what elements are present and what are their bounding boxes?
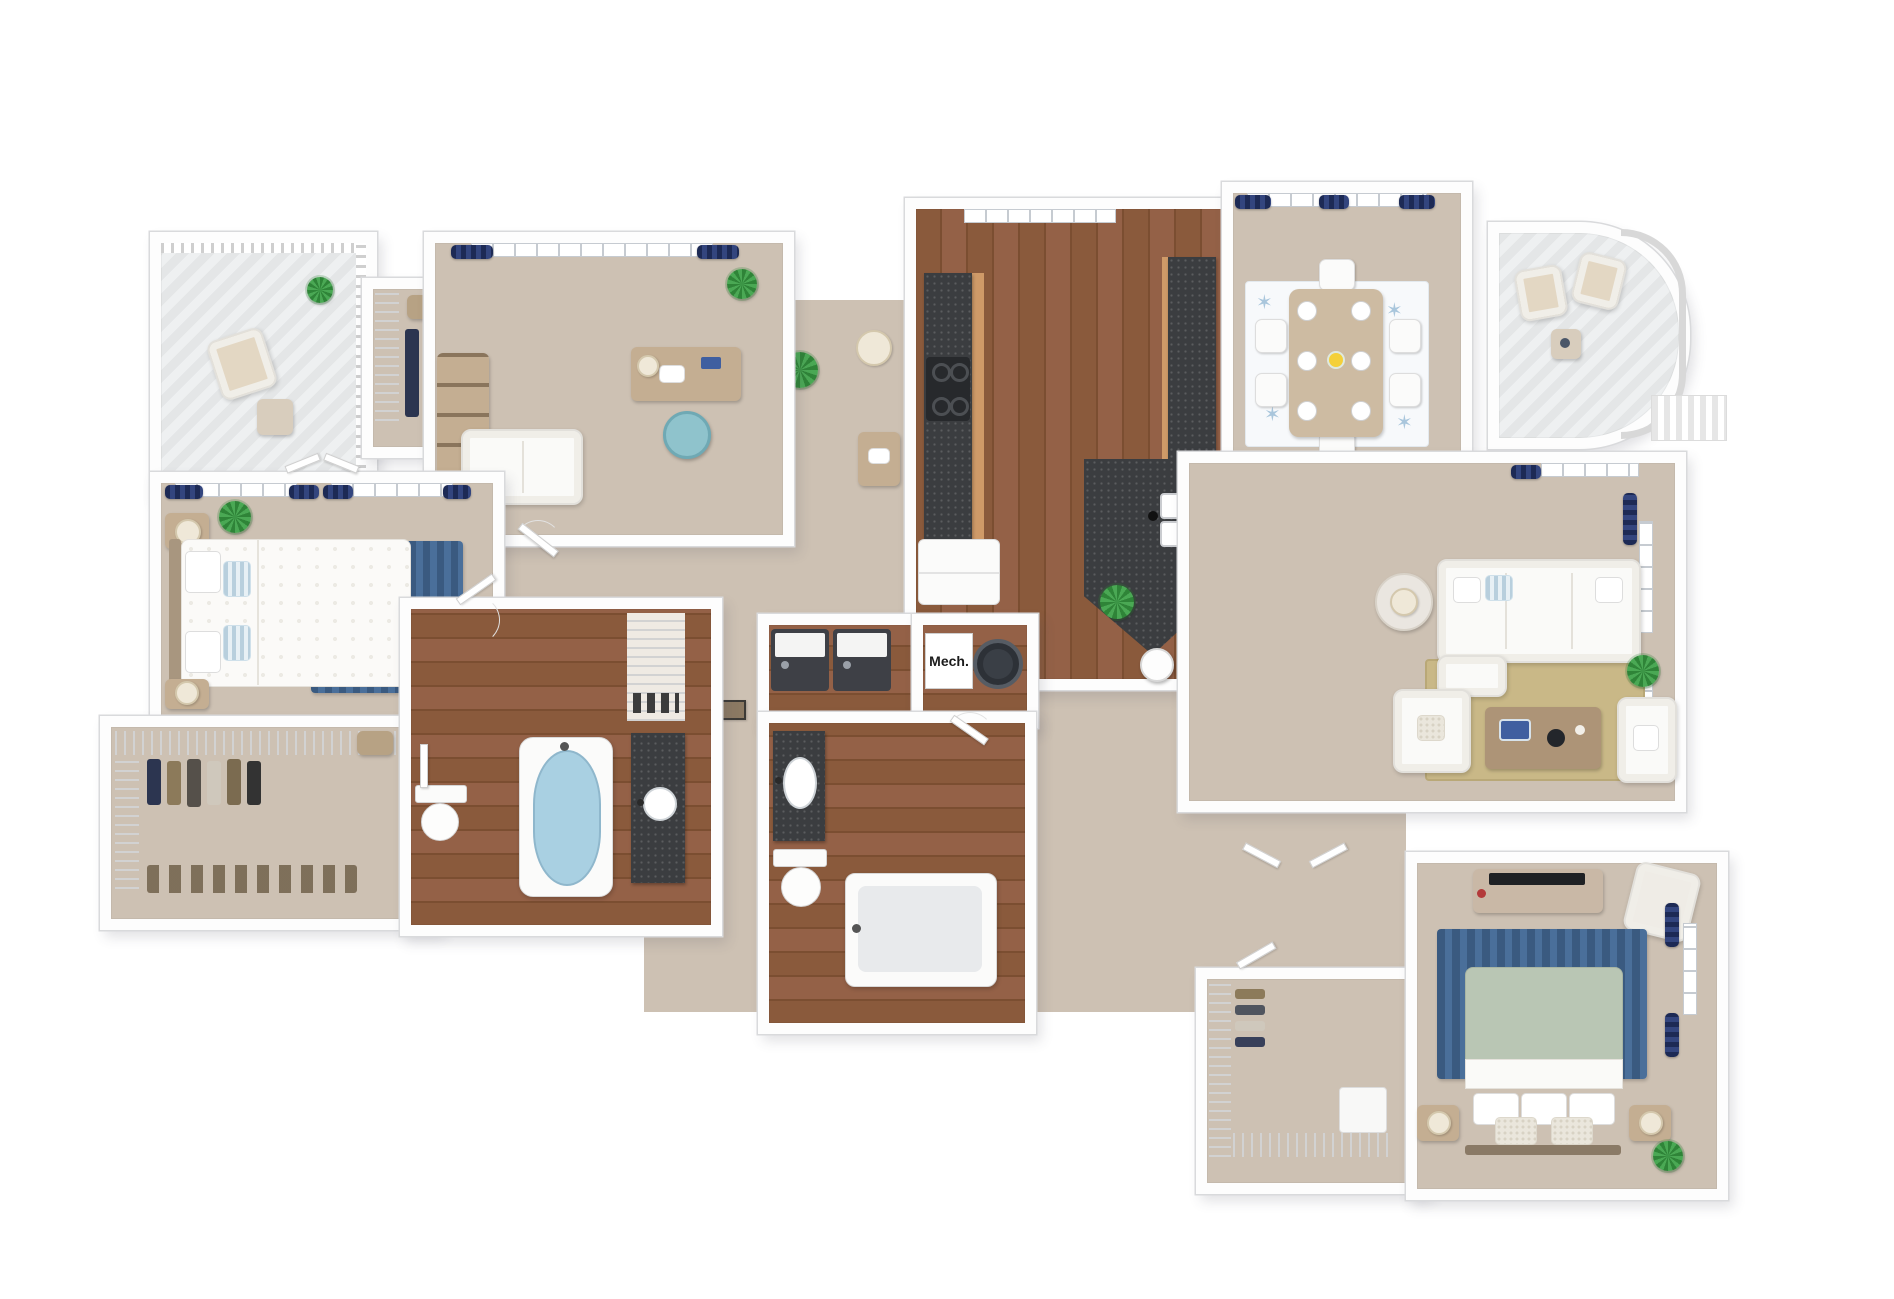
decor-item — [1575, 725, 1585, 735]
hanging-clothes — [187, 759, 201, 807]
shoe-rack — [147, 865, 357, 893]
place-setting — [1297, 401, 1317, 421]
place-setting — [1297, 351, 1317, 371]
place-setting — [1351, 351, 1371, 371]
dining-chair — [1389, 319, 1421, 353]
duvet-fold — [257, 539, 259, 685]
dining-chair — [1255, 319, 1287, 353]
window — [1683, 923, 1697, 1015]
armchair — [1393, 689, 1471, 773]
headboard — [169, 539, 181, 685]
hanging-clothes — [1235, 1037, 1265, 1047]
dryer-top — [837, 633, 887, 657]
tub-faucet — [560, 742, 569, 751]
cushion-divider — [522, 441, 524, 493]
bar-stool — [1140, 648, 1174, 682]
accent-pillow — [1485, 575, 1513, 601]
navy-curtain — [165, 485, 203, 499]
navy-curtain — [1399, 195, 1435, 209]
potted-plant — [307, 277, 333, 303]
dresser-tv-stand — [1473, 869, 1603, 913]
desk — [631, 347, 741, 401]
mechanical-unit: Mech. — [925, 633, 973, 689]
soaking-tub — [519, 737, 613, 897]
burner — [950, 397, 969, 416]
window — [471, 243, 713, 257]
dining-chair — [1255, 373, 1287, 407]
dresser — [1339, 1087, 1387, 1133]
accent-pillow — [1417, 715, 1445, 741]
hanging-clothes — [207, 761, 221, 805]
potted-plant — [727, 269, 757, 299]
toilet — [421, 803, 459, 841]
patio-chair — [1569, 250, 1628, 312]
tv — [1489, 873, 1585, 885]
balcony-railing — [161, 243, 366, 253]
corner-window — [1541, 463, 1639, 477]
hanging-clothes — [1235, 989, 1265, 999]
navy-curtain — [443, 485, 471, 499]
room-second-closet — [1196, 968, 1428, 1194]
countertop-left — [924, 273, 972, 573]
washer — [771, 629, 829, 691]
hanging-clothes — [227, 759, 241, 805]
centerpiece-flowers — [1327, 351, 1345, 369]
door-master-closet — [420, 744, 428, 788]
potted-plant — [1627, 655, 1659, 687]
room-master-bathroom — [400, 598, 722, 936]
navy-curtain — [697, 245, 739, 259]
pillow — [185, 631, 221, 673]
navy-curtain — [323, 485, 353, 499]
navy-curtain — [451, 245, 493, 259]
bathtub — [845, 873, 997, 987]
fridge-door-split — [919, 572, 999, 574]
place-setting — [1351, 301, 1371, 321]
hanging-clothes — [167, 761, 181, 805]
coffee-table — [1485, 707, 1601, 769]
dining-table — [1289, 289, 1383, 437]
queen-bed — [1465, 967, 1621, 1155]
armchair — [1617, 697, 1677, 783]
closet-shoes — [633, 693, 679, 713]
toilet — [781, 867, 821, 907]
navy-curtain — [1665, 903, 1679, 947]
vessel-sink — [643, 787, 677, 821]
range-stove — [926, 357, 970, 421]
place-setting — [1297, 301, 1317, 321]
queen-bed — [169, 539, 409, 685]
washer-top — [775, 633, 825, 657]
dining-chair — [1319, 259, 1355, 291]
window — [964, 209, 1116, 223]
place-setting — [1351, 401, 1371, 421]
potted-plant — [219, 501, 251, 533]
potted-plant — [1653, 1141, 1683, 1171]
accent-pillow — [223, 561, 251, 597]
headboard — [1465, 1145, 1621, 1155]
hanging-clothes — [405, 329, 419, 417]
window — [1639, 521, 1653, 633]
books — [1501, 721, 1529, 739]
burner — [932, 363, 951, 382]
sheet-fold — [1465, 1059, 1623, 1089]
patio-side-table — [257, 399, 293, 435]
pillow — [185, 551, 221, 593]
wire-shelving — [375, 291, 399, 421]
hanging-clothes — [147, 759, 161, 805]
room-dining — [1222, 182, 1472, 482]
wire-shelving — [1209, 981, 1231, 1157]
room-master-closet — [100, 716, 440, 930]
mech-label: Mech. — [929, 653, 969, 669]
tub-basin — [858, 886, 982, 972]
decor-bowl — [1547, 729, 1565, 747]
navy-curtain — [1319, 195, 1349, 209]
desk-chair — [663, 411, 711, 459]
knob — [781, 661, 789, 669]
book — [701, 357, 721, 369]
table-lamp — [1427, 1111, 1451, 1135]
refrigerator — [918, 539, 1000, 605]
faucet — [775, 777, 782, 784]
side-table — [858, 432, 900, 486]
vanity-sink — [783, 757, 817, 809]
sage-blanket — [1465, 967, 1623, 1061]
hanging-clothes — [1235, 1005, 1265, 1015]
patio-side-table — [1551, 329, 1581, 359]
table-lamp — [1639, 1111, 1663, 1135]
wall-art-frame — [720, 700, 746, 720]
tub-water — [533, 750, 601, 886]
navy-curtain — [1623, 493, 1637, 545]
book — [868, 448, 890, 464]
water-heater — [973, 639, 1023, 689]
burner — [950, 363, 969, 382]
dryer — [833, 629, 891, 691]
floor-lamp — [856, 330, 892, 366]
room-second-bathroom — [758, 712, 1036, 1034]
decor-item — [1477, 889, 1486, 898]
sectional-sofa — [1437, 559, 1641, 663]
table-lamp — [1390, 588, 1418, 616]
starfish-motif — [1396, 410, 1413, 435]
balcony-railing — [1652, 396, 1726, 440]
floor-plan: Mech. — [0, 0, 1894, 1299]
wire-shelving — [1233, 1133, 1391, 1157]
starfish-motif — [1256, 290, 1273, 315]
hanging-clothes — [1235, 1021, 1265, 1031]
faucet — [1148, 511, 1158, 521]
faucet — [637, 799, 644, 806]
room-mechanical: Mech. — [912, 614, 1038, 728]
desk-lamp — [637, 355, 659, 377]
accent-pillow — [1551, 1117, 1593, 1145]
dining-chair — [1389, 373, 1421, 407]
paper — [659, 365, 685, 383]
pillow — [1595, 577, 1623, 603]
cushion-divider — [1571, 573, 1573, 649]
room-living — [1178, 452, 1686, 812]
potted-plant — [1100, 585, 1134, 619]
tub-faucet — [852, 924, 861, 933]
table-lamp — [175, 681, 199, 705]
wire-shelving — [115, 757, 139, 889]
room-laundry — [758, 614, 930, 728]
patio-chair — [1513, 263, 1569, 323]
storage-basket — [357, 731, 393, 755]
pillow — [1453, 577, 1481, 603]
knob — [843, 661, 851, 669]
toilet-tank — [773, 849, 827, 867]
hanging-clothes — [247, 761, 261, 805]
accent-pillow — [1495, 1117, 1537, 1145]
burner — [932, 397, 951, 416]
accent-pillow — [223, 625, 251, 661]
navy-curtain — [1665, 1013, 1679, 1057]
room-second-bedroom — [1406, 852, 1728, 1200]
navy-curtain — [289, 485, 319, 499]
patio-chair — [205, 326, 279, 403]
navy-curtain — [1235, 195, 1271, 209]
navy-curtain — [1511, 465, 1541, 479]
decor-item — [1560, 338, 1570, 348]
pillow — [1633, 725, 1659, 751]
